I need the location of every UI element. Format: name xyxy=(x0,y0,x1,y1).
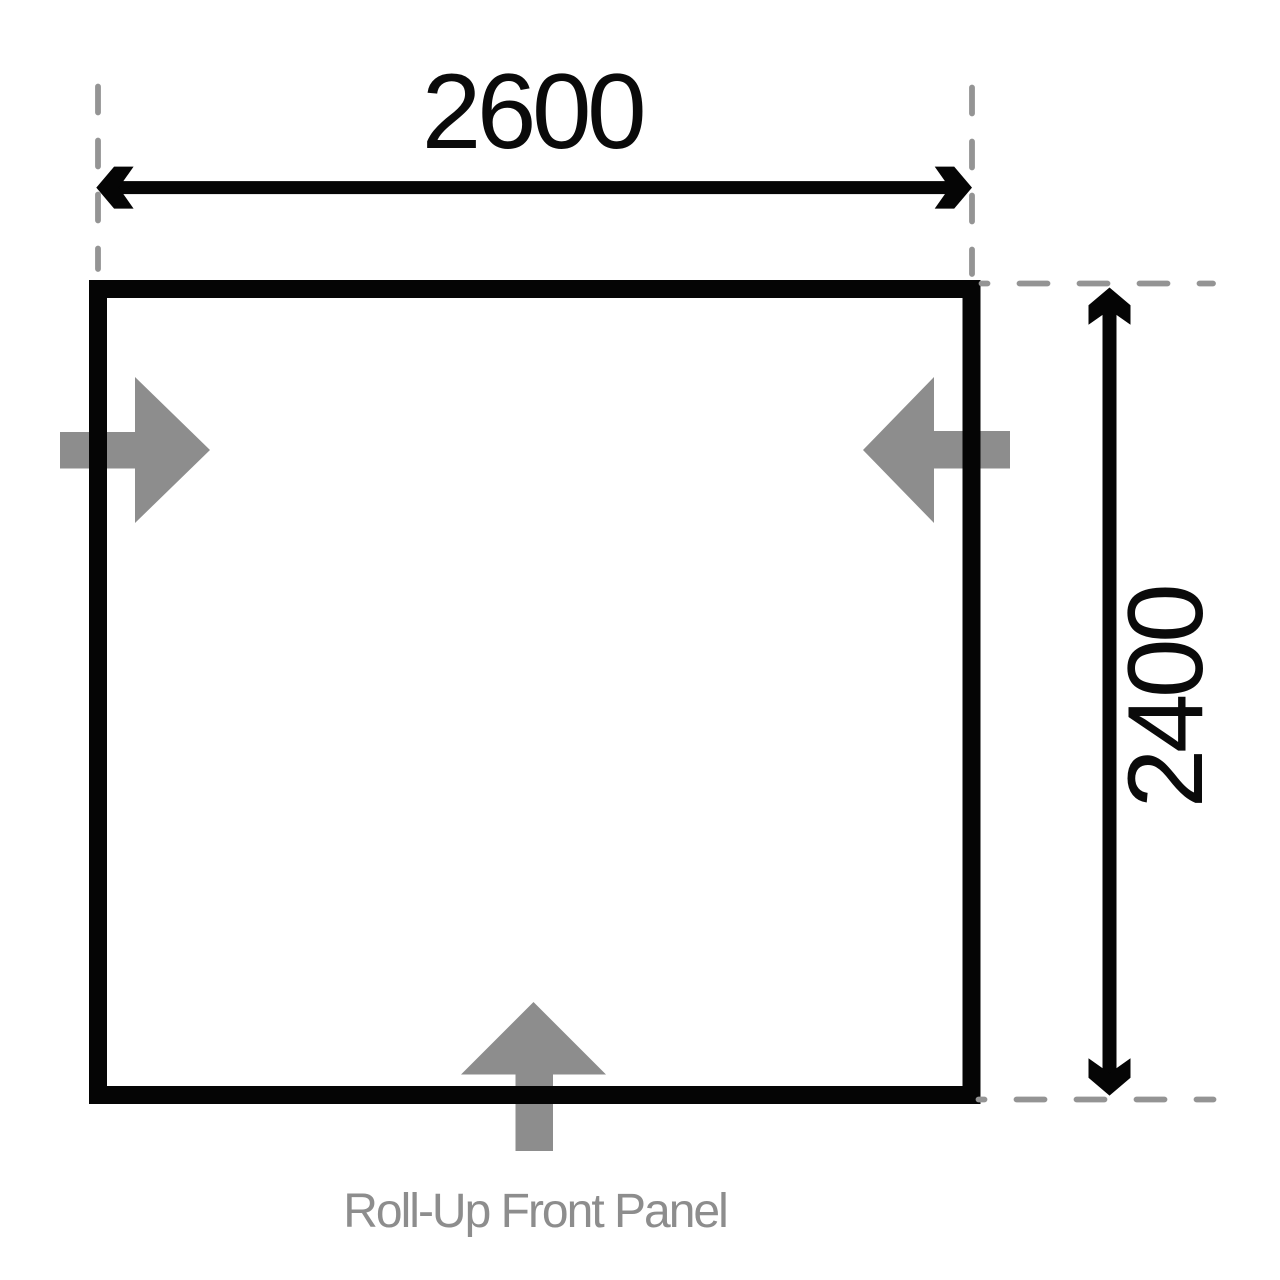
svg-text:2400: 2400 xyxy=(1105,587,1225,808)
svg-text:Roll-Up Front Panel: Roll-Up Front Panel xyxy=(343,1185,727,1238)
svg-text:2600: 2600 xyxy=(422,51,643,171)
